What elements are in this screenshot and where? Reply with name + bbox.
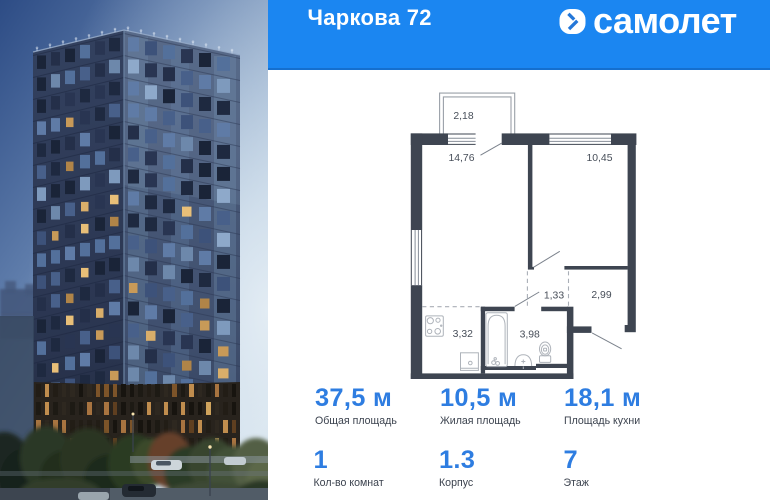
svg-text:14,76: 14,76 [448, 153, 474, 164]
svg-text:3,98: 3,98 [520, 329, 540, 340]
svg-text:2,18: 2,18 [453, 111, 473, 122]
svg-text:1,33: 1,33 [544, 291, 564, 302]
svg-text:2,99: 2,99 [591, 290, 611, 301]
svg-text:10,45: 10,45 [586, 153, 612, 164]
svg-text:3,32: 3,32 [453, 329, 473, 340]
